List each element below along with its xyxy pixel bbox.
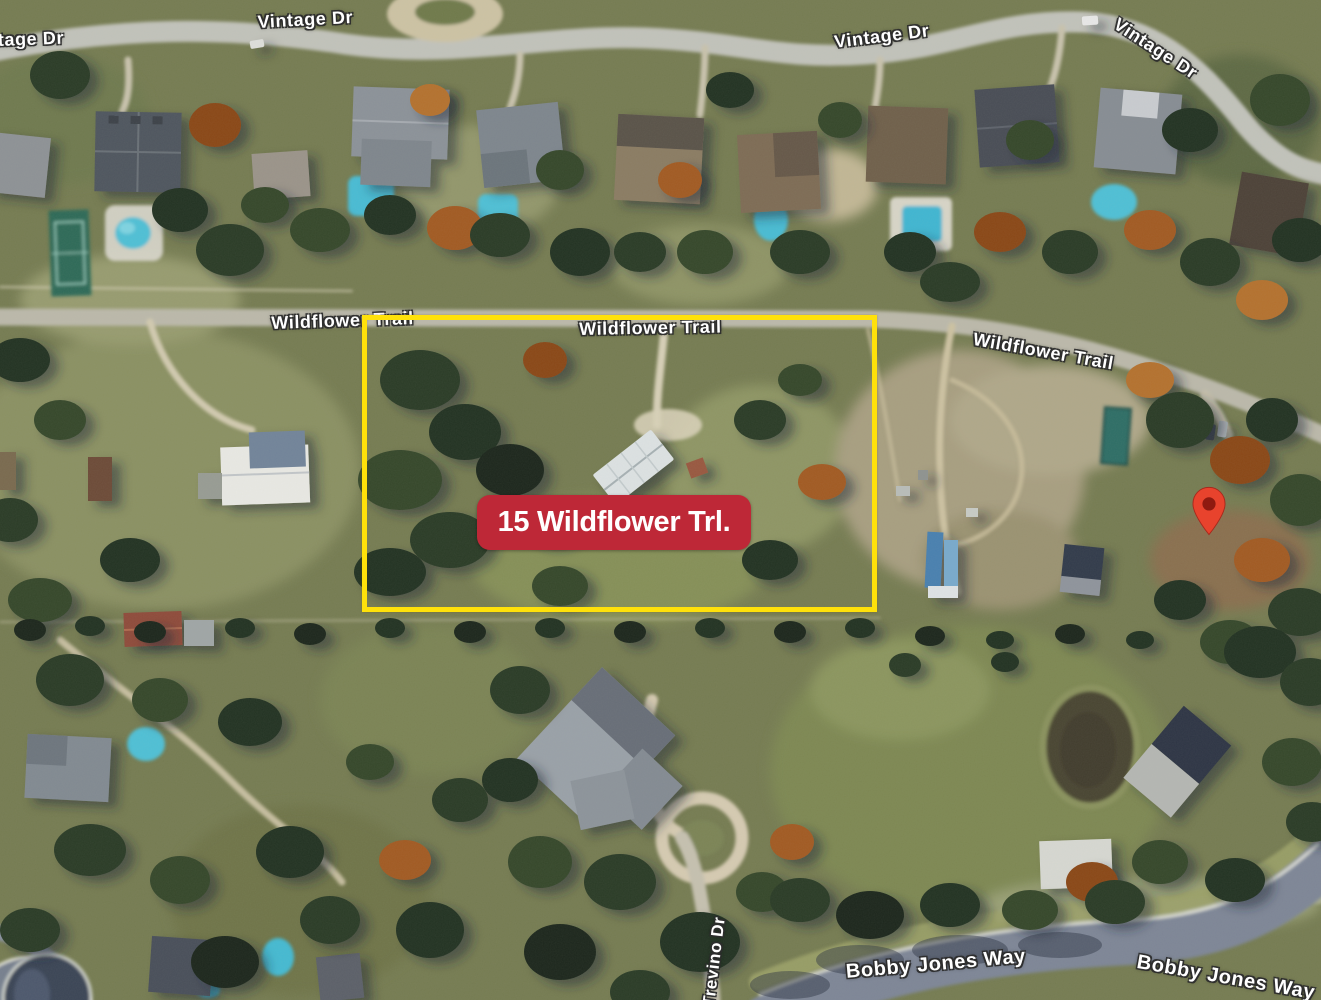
satellite-map[interactable]: Vintage Dr Vintage Dr Vintage Dr Vintage… <box>0 0 1321 1000</box>
property-address-badge: 15 Wildflower Trl. <box>477 495 751 550</box>
property-address-label: 15 Wildflower Trl. <box>498 506 731 539</box>
map-pin-body <box>1193 487 1225 534</box>
map-pin-center-dot <box>1202 497 1215 510</box>
property-boundary-highlight <box>362 315 877 612</box>
map-pin-icon[interactable] <box>1192 486 1226 536</box>
road-label-vintage-dr-1: Vintage Dr <box>0 28 64 52</box>
